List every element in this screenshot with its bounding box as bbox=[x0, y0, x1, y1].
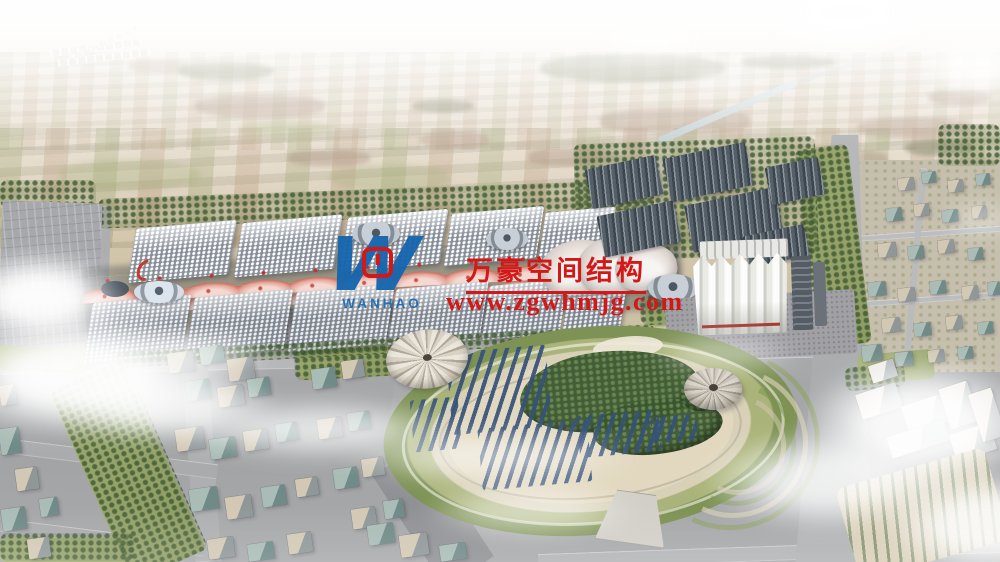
building bbox=[929, 280, 946, 295]
building bbox=[207, 536, 236, 559]
cloud bbox=[130, 330, 270, 380]
station-side-shed bbox=[813, 262, 827, 326]
building bbox=[961, 285, 978, 300]
cloud bbox=[590, 16, 710, 62]
building bbox=[287, 531, 314, 554]
building bbox=[15, 467, 40, 492]
building bbox=[945, 315, 962, 330]
building bbox=[913, 203, 929, 217]
building bbox=[311, 366, 338, 389]
building bbox=[885, 207, 902, 222]
cloud bbox=[650, 330, 800, 375]
building bbox=[913, 322, 931, 337]
building bbox=[947, 179, 963, 193]
building bbox=[897, 177, 914, 191]
building bbox=[399, 532, 430, 558]
cloud bbox=[680, 66, 770, 96]
cloud bbox=[420, 480, 640, 540]
building bbox=[881, 317, 900, 333]
building bbox=[341, 359, 365, 380]
building bbox=[987, 281, 1000, 295]
tree-belt bbox=[0, 533, 134, 561]
building bbox=[907, 245, 924, 260]
aerial-rendering-canvas: W WANHAO 万豪空间结构 www.zgwhmjg.com bbox=[0, 0, 1000, 562]
building bbox=[937, 239, 954, 254]
building bbox=[1, 506, 28, 531]
tree-belt bbox=[938, 124, 1000, 166]
building bbox=[957, 346, 973, 360]
building bbox=[975, 173, 990, 185]
dome-pavilion bbox=[352, 222, 400, 246]
station-side-shed bbox=[791, 256, 814, 331]
building bbox=[367, 522, 396, 545]
building bbox=[877, 242, 896, 258]
building bbox=[383, 499, 405, 520]
building bbox=[897, 287, 915, 302]
building bbox=[295, 477, 319, 498]
building bbox=[27, 537, 52, 560]
building bbox=[247, 541, 275, 561]
building bbox=[967, 247, 983, 261]
tent-hub bbox=[422, 353, 432, 361]
building bbox=[189, 486, 220, 512]
dome-pavilion bbox=[486, 228, 528, 250]
entrance-oval-building bbox=[134, 281, 184, 303]
cloud bbox=[340, 430, 640, 485]
building bbox=[867, 281, 886, 297]
building bbox=[225, 494, 254, 519]
building bbox=[261, 484, 288, 507]
building bbox=[921, 171, 936, 183]
building bbox=[39, 497, 59, 517]
building bbox=[977, 321, 993, 335]
